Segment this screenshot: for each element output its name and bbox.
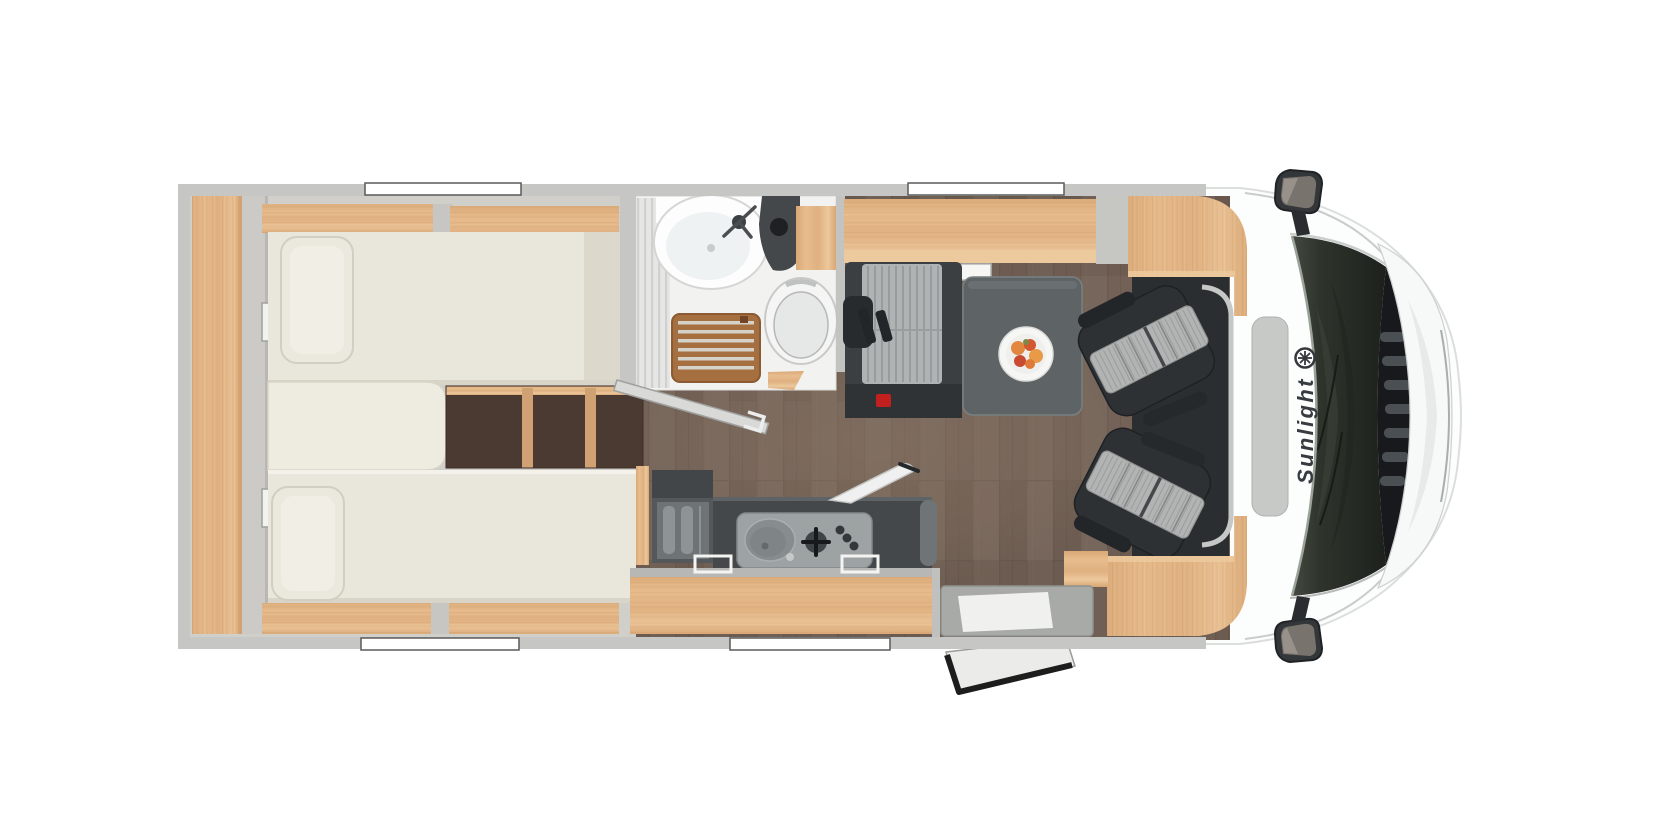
svg-text:Sunlight: Sunlight: [1293, 378, 1318, 484]
